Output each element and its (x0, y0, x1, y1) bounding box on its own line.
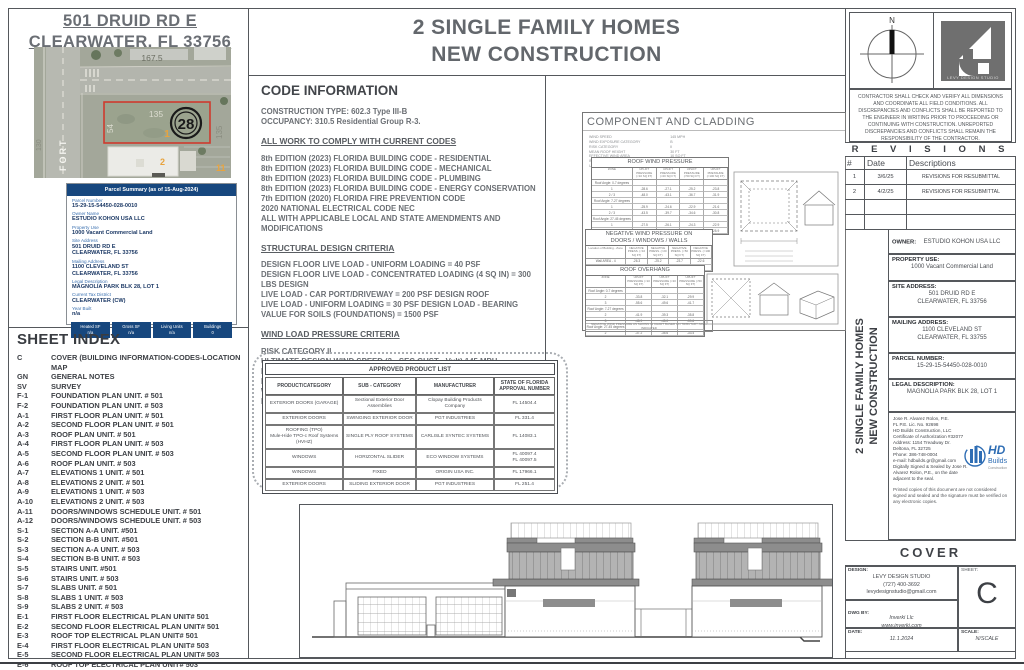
sheet-index-title: SHEET INDEX (17, 331, 246, 348)
roof-wind-pressure-table: ROOF WIND PRESSURE ZONEUPLIFT PRESSURE (… (591, 157, 729, 235)
revisions-body: 1 3/6/25 REVISIONS FOR RESUBMITTAL 2 4/2… (845, 170, 1016, 230)
revision-row: 1 3/6/25 REVISIONS FOR RESUBMITTAL (845, 170, 1016, 185)
sub-category: SLIDING EXTERIOR DOOR (343, 479, 416, 491)
sheet-description: SLABS UNIT. # 501 (51, 583, 246, 593)
sub-category: HORIZONTAL SLIDER (343, 449, 416, 467)
sheet-index-row: A-3 ROOF PLAN UNIT. # 501 (13, 430, 246, 440)
date-value: 11.1.2024 (846, 636, 957, 644)
map-lot-11: 11 (216, 163, 226, 173)
code-line: 8th EDITION (2023) FLORIDA BUILDING CODE… (261, 154, 539, 164)
code-line: 8th EDITION (2023) FLORIDA BUILDING CODE… (261, 174, 539, 184)
revision-date (865, 215, 907, 230)
approved-products-title: APPROVED PRODUCT LIST (265, 363, 555, 375)
sheet-description: SLABS 2 UNIT. # 503 (51, 602, 246, 612)
revision-description: REVISIONS FOR RESUBMITTAL (907, 170, 1016, 185)
sheet-code: F-2 (17, 401, 51, 411)
sheet-code: E-4 (17, 641, 51, 651)
roof-table-header-cell: UPLIFT PRESSURE (<20 SQ FT) (657, 168, 681, 180)
code-line: ALL WITH APPLICABLE LOCAL AND STATE AMEN… (261, 214, 539, 234)
mailing-address-value: 1100 CLEVELAND ST CLEARWATER, FL 33755 (889, 326, 1015, 342)
codes-list: 8th EDITION (2023) FLORIDA BUILDING CODE… (261, 154, 539, 234)
sheet-code: A-4 (17, 439, 51, 449)
code-line: 7th EDITION (2020) FLORIDA FIRE PREVENTI… (261, 194, 539, 204)
sheet-description: GENERAL NOTES (51, 372, 246, 382)
sheet-description: SECTION A-A UNIT. # 503 (51, 545, 246, 555)
sheet-letter: C (959, 574, 1015, 614)
engineer-lines: Jose R. Alvarez Rolon, P.E.FL P.E. Lic. … (893, 416, 971, 482)
levy-design-studio-logo: LEVY DESIGN STUDIO (941, 21, 1005, 81)
structural-line: LIVE LOAD - CAR PORT/DRIVEWAY = 200 PSF … (261, 290, 539, 300)
owner-box: OWNER: ESTUDIO KOHON USA LLC (888, 229, 1016, 254)
overhang-table-header-cell: UPLIFT PRESSURE (<10 SQ FT) (626, 276, 652, 288)
property-use-value: 1000 Vacant Commercial Land (889, 263, 1015, 271)
sheet-code: S-8 (17, 593, 51, 603)
parcel-number-label: PARCEL NUMBER: (889, 354, 1015, 362)
legal-description-value: MAGNOLIA PARK BLK 28, LOT 1 (889, 388, 1015, 396)
codeinfo-divider (545, 75, 546, 360)
sheet-code: S-5 (17, 564, 51, 574)
revision-number (845, 200, 865, 215)
code-line: 2020 NATIONAL ELECTRICAL CODE NEC (261, 204, 539, 214)
sheet-description: FOUNDATION PLAN UNIT. # 501 (51, 391, 246, 401)
approved-header-cell: STATE OF FLORIDA APPROVAL NUMBER (494, 377, 555, 395)
property-use-box: PROPERTY USE: 1000 Vacant Commercial Lan… (888, 254, 1016, 281)
sheet-description: SECOND FLOOR ELECTRICAL PLAN UNIT# 503 (51, 650, 246, 660)
revisions-header-cell: # (845, 157, 865, 170)
revisions-header-cell: Date (865, 157, 907, 170)
sheet-code: A-2 (17, 420, 51, 430)
sheet-code: A-5 (17, 449, 51, 459)
sheet-index-row: S-5 STAIRS UNIT. #501 (13, 564, 246, 574)
sheet-index-row: E-1 FIRST FLOOR ELECTRICAL PLAN UNIT# 50… (13, 612, 246, 622)
sheet-code: E-1 (17, 612, 51, 622)
field-value: 1100 CLEVELAND ST CLEARWATER, FL 33756 (72, 264, 231, 277)
hd-logo-top: HD (988, 443, 1006, 457)
approved-header-cell: MANUFACTURER (416, 377, 494, 395)
sheet-description: SECOND FLOOR ELECTRICAL PLAN UNIT# 501 (51, 622, 246, 632)
sheet-index-row: GN GENERAL NOTES (13, 372, 246, 382)
manufacturer: ECO WINDOW SYSTEMS (416, 449, 494, 467)
revision-number (845, 215, 865, 230)
roof-table-header-cell: ZONE (592, 168, 633, 180)
parcel-number-value: 15-29-15-54450-028-0010 (889, 362, 1015, 370)
sheet-index-row: A-10 ELEVATIONS 2 UNIT. # 503 (13, 497, 246, 507)
legal-description-box: LEGAL DESCRIPTION: MAGNOLIA PARK BLK 28,… (888, 379, 1016, 412)
approval-number: FL 17966.1 (494, 467, 555, 479)
map-street-name: FORT (58, 139, 68, 172)
revisions-headers: #DateDescriptions (845, 157, 1016, 170)
revision-number: 1 (845, 170, 865, 185)
roof-zone-diagram (733, 171, 839, 267)
sheet-code: S-2 (17, 535, 51, 545)
revision-number: 2 (845, 185, 865, 200)
scale-value: N/SCALE (959, 636, 1015, 644)
sheet-code: S-7 (17, 583, 51, 593)
parcel-summary-field: Parcel Number 15-29-15-54450-028-0010 (72, 198, 231, 210)
scale-block: SCALE: N/SCALE (958, 628, 1016, 652)
sheet-description: DOORS/WINDOWS SCHEDULE UNIT. # 501 (51, 507, 246, 517)
negative-table-header-cell: Location of Building - Zone (586, 246, 626, 258)
map-block-number: 28 (178, 116, 195, 133)
code-information-title: CODE INFORMATION (261, 82, 539, 99)
sheet-index-row: A-6 ROOF PLAN UNIT. # 503 (13, 459, 246, 469)
sheet-description: ROOF TOP ELECTRICAL PLAN UNIT# 503 (51, 660, 246, 670)
overhang-table-header-cell: ZONE (586, 276, 626, 288)
sheet-description: ROOF PLAN UNIT. # 503 (51, 459, 246, 469)
north-arrow-icon: N (850, 13, 933, 88)
approved-product-row: WINDOWS HORIZONTAL SLIDER ECO WINDOW SYS… (265, 449, 555, 467)
code-line: 8th EDITION (2023) FLORIDA BUILDING CODE… (261, 184, 539, 194)
structural-heading: STRUCTURAL DESIGN CRITERIA (261, 243, 539, 254)
parcel-summary-panel: Parcel Summary (as of 15-Aug-2024) Parce… (66, 183, 237, 325)
revision-date: 3/6/25 (865, 170, 907, 185)
sheet-index-row: F-1 FOUNDATION PLAN UNIT. # 501 (13, 391, 246, 401)
approved-products-body: EXTERIOR DOORS (GARAGE) Sectional Exteri… (263, 395, 557, 491)
approved-header-cell: PRODUCT/CATEGORY (265, 377, 343, 395)
manufacturer: ORIGIN USA INC. (416, 467, 494, 479)
sheet-index-row: E-2 SECOND FLOOR ELECTRICAL PLAN UNIT# 5… (13, 622, 246, 632)
date-block: DATE: 11.1.2024 (845, 628, 958, 652)
sheet-index-row: A-4 FIRST FLOOR PLAN UNIT. # 503 (13, 439, 246, 449)
sheet-index-row: A-12 DOORS/WINDOWS SCHEDULE UNIT. # 503 (13, 516, 246, 526)
negative-table-header-cell: NEGATIVE PRESS. (<100 SQ FT) (691, 246, 712, 258)
sheet-description: FIRST FLOOR ELECTRICAL PLAN UNIT# 503 (51, 641, 246, 651)
sheet-description: SLABS 1 UNIT. # 503 (51, 593, 246, 603)
structural-line: DESIGN FLOOR LIVE LOAD - UNIFORM LOADING… (261, 260, 539, 270)
dwg-by-block: DWG BY: Inverki Llc www.inverki.com 727-… (845, 600, 958, 628)
owner-value: ESTUDIO KOHON USA LLC (924, 239, 1001, 245)
roof-table-body: Roof Angle: 0-7 degrees 1 -28.6 -27.1 -2… (592, 180, 728, 234)
structural-list: DESIGN FLOOR LIVE LOAD - UNIFORM LOADING… (261, 260, 539, 320)
map-lot-number: 1 (164, 129, 170, 140)
field-value: 501 DRUID RD E CLEARWATER, FL 33756 (72, 244, 231, 257)
sub-category: SWINGING EXTERIOR DOOR (343, 413, 416, 425)
revision-row: 2 4/2/25 REVISIONS FOR RESUBMITTAL (845, 185, 1016, 200)
revision-row (845, 215, 1016, 230)
approval-number: FL 251.4 (494, 479, 555, 491)
product-category: EXTERIOR DOORS (GARAGE) (265, 395, 343, 413)
mailing-address-label: MAILING ADDRESS: (889, 318, 1015, 326)
wall-zone-diagram (706, 273, 839, 325)
map-parcel-depth: 54 (106, 124, 115, 133)
sheet-code: C (17, 353, 51, 372)
sub-category: SINGLE PLY ROOF SYSTEMS (343, 425, 416, 449)
sheet-code: S-6 (17, 574, 51, 584)
sheet-index-row: E-5 SECOND FLOOR ELECTRICAL PLAN UNIT# 5… (13, 650, 246, 660)
scale-label: SCALE: (959, 629, 1015, 636)
manufacturer: Clopay Building Products Company (416, 395, 494, 413)
sheet-description: STAIRS UNIT. #501 (51, 564, 246, 574)
sub-category: FIXED (343, 467, 416, 479)
map-left-dim: 130 (36, 139, 43, 151)
revision-date: 4/2/25 (865, 185, 907, 200)
product-category: EXTERIOR DOORS (265, 413, 343, 425)
sheet-index-row: S-3 SECTION A-A UNIT. # 503 (13, 545, 246, 555)
left-column-divider (248, 8, 249, 659)
negative-table-title: NEGATIVE WIND PRESSURE ON DOORS / WINDOW… (586, 230, 712, 246)
sheet-code: A-8 (17, 478, 51, 488)
approved-product-row: EXTERIOR DOORS SWINGING EXTERIOR DOOR PG… (265, 413, 555, 425)
map-block-circle: 28 (171, 108, 201, 138)
sheet-code: A-7 (17, 468, 51, 478)
design-value: LEVY DESIGN STUDIO (727) 400-3692 levyde… (846, 574, 957, 597)
sheet-code: A-3 (17, 430, 51, 440)
design-label: DESIGN: (846, 567, 957, 574)
sheet-description: STAIRS UNIT. # 503 (51, 574, 246, 584)
design-block: DESIGN: LEVY DESIGN STUDIO (727) 400-369… (845, 566, 958, 600)
overhang-table-headers: ZONEUPLIFT PRESSURE (<10 SQ FT)UPLIFT PR… (586, 276, 704, 288)
sheet-code: A-12 (17, 516, 51, 526)
sheet-index-row: E-6 ROOF TOP ELECTRICAL PLAN UNIT# 503 (13, 660, 246, 670)
sheet-code: A-6 (17, 459, 51, 469)
sheet-index-row: A-9 ELEVATIONS 1 UNIT. # 503 (13, 487, 246, 497)
map-right-dim: 135 (215, 125, 224, 139)
sheet-description: SECTION A-A UNIT. #501 (51, 526, 246, 536)
roof-table-header-cell: UPLIFT PRESSURE (<50 SQ FT) (680, 168, 704, 180)
vertical-project-title: 2 SINGLE FAMILY HOMES NEW CONSTRUCTION (854, 236, 882, 536)
map-lot-2: 2 (160, 157, 165, 167)
approved-products-table: APPROVED PRODUCT LIST PRODUCT/CATEGORYSU… (262, 360, 558, 494)
sheet-code: S-4 (17, 554, 51, 564)
sheet-description: ELEVATIONS 1 UNIT. # 501 (51, 468, 246, 478)
compass-logo-row: N LEVY DESIGN STUDIO (849, 12, 1012, 89)
negative-table-header-cell: NEGATIVE PRESS. (<20 SQ FT) (648, 246, 669, 258)
sub-category: Sectional Exterior Door Assemblies (343, 395, 416, 413)
approval-number: FL 14504.4 (494, 395, 555, 413)
parcel-summary-field: Current Tax District CLEARWATER (CW) (72, 292, 231, 304)
approval-number: FL 14083.1 (494, 425, 555, 449)
sheet-description: ELEVATIONS 1 UNIT. # 503 (51, 487, 246, 497)
sheet-index-row: A-8 ELEVATIONS 2 UNIT. # 501 (13, 478, 246, 488)
hd-builds-logo: HD Builds Construction (964, 439, 1012, 473)
field-value: n/a (72, 311, 231, 318)
sheet-number-block: SHEET: C (958, 566, 1016, 628)
title-divider (248, 75, 845, 76)
roof-table-header-cell: UPLIFT PRESSURE (<10 SQ FT) (633, 168, 657, 180)
sheet-description: ELEVATIONS 2 UNIT. # 501 (51, 478, 246, 488)
manufacturer: CARLISLE SYNTEC SYSTEMS (416, 425, 494, 449)
cc-note: NEGATIVE WIND PRESSURE AS SHOWN IN CHART… (585, 320, 713, 332)
negative-table-headers: Location of Building - ZoneNEGATIVE PRES… (586, 246, 712, 258)
field-value: CLEARWATER (CW) (72, 298, 231, 305)
wind-heading: WIND LOAD PRESSURE CRITERIA (261, 329, 539, 340)
engineer-line: Digitally Signed & Sealed by Jose R. Alv… (893, 464, 971, 482)
owner-label: OWNER: (889, 238, 919, 246)
sheet-index-row: E-3 ROOF TOP ELECTRICAL PLAN UNIT# 501 (13, 631, 246, 641)
code-general-list: CONSTRUCTION TYPE: 602.3 Type III-BOCCUP… (261, 107, 539, 127)
sheet-index-row: E-4 FIRST FLOOR ELECTRICAL PLAN UNIT# 50… (13, 641, 246, 651)
sheet-code: SV (17, 382, 51, 392)
revisions-title-bar: R E V I S I O N S (845, 142, 1016, 157)
parcel-summary-field: Legal Description MAGNOLIA PARK BLK 28, … (72, 279, 231, 291)
structural-line: DESIGN FLOOR LIVE LOAD - CONCENTRATED LO… (261, 270, 539, 290)
parcel-summary-header: Parcel Summary (as of 15-Aug-2024) (67, 184, 236, 196)
code-general-line: CONSTRUCTION TYPE: 602.3 Type III-B (261, 107, 539, 117)
sheet-code: A-10 (17, 497, 51, 507)
product-category: EXTERIOR DOORS (265, 479, 343, 491)
approved-header-cell: SUB - CATEGORY (343, 377, 416, 395)
sheet-index-row: S-1 SECTION A-A UNIT. #501 (13, 526, 246, 536)
negative-table-header-cell: NEGATIVE PRESS. (<50 SQ FT) (669, 246, 690, 258)
date-label: DATE: (846, 629, 957, 636)
sheet-code: A-1 (17, 411, 51, 421)
sheet-code: F-1 (17, 391, 51, 401)
sheet-description: SECTION B-B UNIT. #501 (51, 535, 246, 545)
map-parcel-width: 135 (149, 109, 163, 119)
sheet-description: COVER (BUILDING INFORMATION-CODES-LOCATI… (51, 353, 246, 372)
sheet-code: A-9 (17, 487, 51, 497)
engineer-note: Printed copies of this document are not … (893, 487, 1011, 505)
aerial-map: 28 167.5 135 54 1 135 130 11 2 FORT (34, 47, 231, 178)
hd-logo-bottom: Construction (988, 466, 1007, 470)
revision-description: REVISIONS FOR RESUBMITTAL (907, 185, 1016, 200)
structural-line: LIVE LOAD - UNIFORM LOADING = 30 PSF DES… (261, 300, 539, 320)
sheet-index-row: SV SURVEY (13, 382, 246, 392)
sheet-description: SURVEY (51, 382, 246, 392)
field-value: 1000 Vacant Commercial Land (72, 230, 231, 237)
approved-product-row: EXTERIOR DOORS (GARAGE) Sectional Exteri… (265, 395, 555, 413)
map-top-dim: 167.5 (141, 53, 163, 63)
revision-date (865, 200, 907, 215)
north-label: N (889, 16, 895, 25)
parcel-summary-field: Owner Name ESTUDIO KOHON USA LLC (72, 211, 231, 223)
sheet-index-row: S-9 SLABS 2 UNIT. # 503 (13, 602, 246, 612)
manufacturer: PGT INDUSTRIES (416, 479, 494, 491)
parcel-summary-field: Property Use 1000 Vacant Commercial Land (72, 225, 231, 237)
sheet-description: ELEVATIONS 2 UNIT. # 503 (51, 497, 246, 507)
approved-product-row: ROOFING (TPO) Mule-Hide TPO-c Roof Syste… (265, 425, 555, 449)
parcel-summary-field: Site Address 501 DRUID RD E CLEARWATER, … (72, 238, 231, 257)
roof-table-headers: ZONEUPLIFT PRESSURE (<10 SQ FT)UPLIFT PR… (592, 168, 728, 180)
sheet-description: FIRST FLOOR ELECTRICAL PLAN UNIT# 501 (51, 612, 246, 622)
approval-number: FL 331.4 (494, 413, 555, 425)
sheet-index-row: S-8 SLABS 1 UNIT. # 503 (13, 593, 246, 603)
revisions-header-cell: Descriptions (907, 157, 1016, 170)
approved-products-headers: PRODUCT/CATEGORYSUB - CATEGORYMANUFACTUR… (265, 377, 555, 395)
field-value: MAGNOLIA PARK BLK 28, LOT 1 (72, 284, 231, 291)
roof-table-header-cell: UPLIFT PRESSURE (<100 SQ FT) (704, 168, 728, 180)
elevation-panel (299, 504, 833, 658)
site-address-label: SITE ADDRESS: (889, 282, 1015, 290)
house-501 (493, 523, 639, 637)
sheet-index-row: F-2 FOUNDATION PLAN UNIT. # 503 (13, 401, 246, 411)
project-main-title: 2 SINGLE FAMILY HOMES NEW CONSTRUCTION (248, 14, 845, 69)
product-category: WINDOWS (265, 467, 343, 479)
sheet-index: SHEET INDEX C COVER (BUILDING INFORMATIO… (13, 331, 246, 670)
sheet-description: SECOND FLOOR PLAN UNIT. # 503 (51, 449, 246, 459)
sheet-index-row: A-7 ELEVATIONS 1 UNIT. # 501 (13, 468, 246, 478)
revision-row (845, 200, 1016, 215)
sheet-code: A-11 (17, 507, 51, 517)
approved-product-row: EXTERIOR DOORS SLIDING EXTERIOR DOOR PGT… (265, 479, 555, 491)
parcel-summary-field: Mailing Address 1100 CLEVELAND ST CLEARW… (72, 259, 231, 278)
field-value: ESTUDIO KOHON USA LLC (72, 216, 231, 223)
approval-number: FL 40097.4 FL 40097.5 (494, 449, 555, 467)
parcel-number-box: PARCEL NUMBER: 15-29-15-54450-028-0010 (888, 353, 1016, 379)
contractor-note: CONTRACTOR SHALL CHECK AND VERIFY ALL DI… (849, 89, 1012, 142)
overhang-table-header-cell: UPLIFT PRESSURE (<50 SQ FT) (678, 276, 704, 288)
sheet-description: DOORS/WINDOWS SCHEDULE UNIT. # 503 (51, 516, 246, 526)
levy-logo-text: LEVY DESIGN STUDIO (947, 75, 999, 80)
sheet-index-row: S-7 SLABS UNIT. # 501 (13, 583, 246, 593)
parcel-summary-field: Year Built n/a (72, 306, 231, 318)
sheet-description: SECTION B-B UNIT. # 503 (51, 554, 246, 564)
sheet-code: E-6 (17, 660, 51, 670)
dwg-by-label: DWG BY: (846, 610, 871, 617)
sheet-index-row: S-2 SECTION B-B UNIT. #501 (13, 535, 246, 545)
sheet-description: ROOF PLAN UNIT. # 501 (51, 430, 246, 440)
legal-description-label: LEGAL DESCRIPTION: (889, 380, 1015, 388)
codes-heading: ALL WORK TO COMPLY WITH CURRENT CODES (261, 136, 539, 147)
sheet-code: S-9 (17, 602, 51, 612)
sheet-description: FIRST FLOOR PLAN UNIT. # 503 (51, 439, 246, 449)
building-elevation-drawing (300, 505, 832, 657)
component-cladding-title: COMPONENT AND CLADDING (583, 113, 845, 131)
property-use-label: PROPERTY USE: (889, 255, 1015, 263)
sheet-code: E-3 (17, 631, 51, 641)
sheet-index-row: C COVER (BUILDING INFORMATION-CODES-LOCA… (13, 353, 246, 372)
product-category: WINDOWS (265, 449, 343, 467)
house-503 (692, 523, 832, 637)
sheet-code: E-2 (17, 622, 51, 632)
site-address-value: 501 DRUID RD E CLEARWATER, FL 33756 (889, 290, 1015, 306)
engineer-stamp-block: Jose R. Alvarez Rolon, P.E.FL P.E. Lic. … (888, 412, 1016, 540)
mailing-address-box: MAILING ADDRESS: 1100 CLEVELAND ST CLEAR… (888, 317, 1016, 353)
sheet-description: FOUNDATION PLAN UNIT. # 503 (51, 401, 246, 411)
code-general-line: OCCUPANCY: 310.5 Residential Group R-3. (261, 117, 539, 127)
sheet-index-row: A-11 DOORS/WINDOWS SCHEDULE UNIT. # 501 (13, 507, 246, 517)
product-category: ROOFING (TPO) Mule-Hide TPO-c Roof Syste… (265, 425, 343, 449)
cover-title-bar: COVER (845, 540, 1016, 566)
sheet-index-row: A-5 SECOND FLOOR PLAN UNIT. # 503 (13, 449, 246, 459)
code-line: 8th EDITION (2023) FLORIDA BUILDING CODE… (261, 164, 539, 174)
field-value: 15-29-15-54450-028-0010 (72, 203, 231, 210)
sheet-code: S-3 (17, 545, 51, 555)
sheet-label: SHEET: (959, 567, 1015, 574)
sheet-index-row: A-2 SECOND FLOOR PLAN UNIT. # 501 (13, 420, 246, 430)
site-address-box: SITE ADDRESS: 501 DRUID RD E CLEARWATER,… (888, 281, 1016, 317)
sheet-index-list: C COVER (BUILDING INFORMATION-CODES-LOCA… (13, 353, 246, 670)
revisions-table: #DateDescriptions 1 3/6/25 REVISIONS FOR… (845, 157, 1016, 230)
revision-description (907, 200, 1016, 215)
sheet-code: E-5 (17, 650, 51, 660)
sheet-index-row: S-4 SECTION B-B UNIT. # 503 (13, 554, 246, 564)
sheet-code: GN (17, 372, 51, 382)
revision-description (907, 215, 1016, 230)
approved-product-row: WINDOWS FIXED ORIGIN USA INC. FL 17966.1 (265, 467, 555, 479)
sheet-description: ROOF TOP ELECTRICAL PLAN UNIT# 501 (51, 631, 246, 641)
component-cladding-panel: COMPONENT AND CLADDING WIND SPEED 145 MP… (582, 112, 846, 331)
parcel-summary-fields: Parcel Number 15-29-15-54450-028-0010 Ow… (67, 198, 236, 318)
manufacturer: PGT INDUSTRIES (416, 413, 494, 425)
sheet-index-row: A-1 FIRST FLOOR PLAN UNIT. # 501 (13, 411, 246, 421)
engineer-line: Certificate of Authorization #32077 (893, 434, 971, 440)
sheet-description: SECOND FLOOR PLAN UNIT. # 501 (51, 420, 246, 430)
sheet-description: FIRST FLOOR PLAN UNIT. # 501 (51, 411, 246, 421)
sheet-code: S-1 (17, 526, 51, 536)
overhang-table-header-cell: UPLIFT PRESSURE (<20 SQ FT) (652, 276, 678, 288)
hd-logo-mid: Builds (988, 458, 1008, 465)
sheet-index-row: S-6 STAIRS UNIT. # 503 (13, 574, 246, 584)
negative-table-header-cell: NEGATIVE PRESS. (<10 SQ FT) (626, 246, 647, 258)
